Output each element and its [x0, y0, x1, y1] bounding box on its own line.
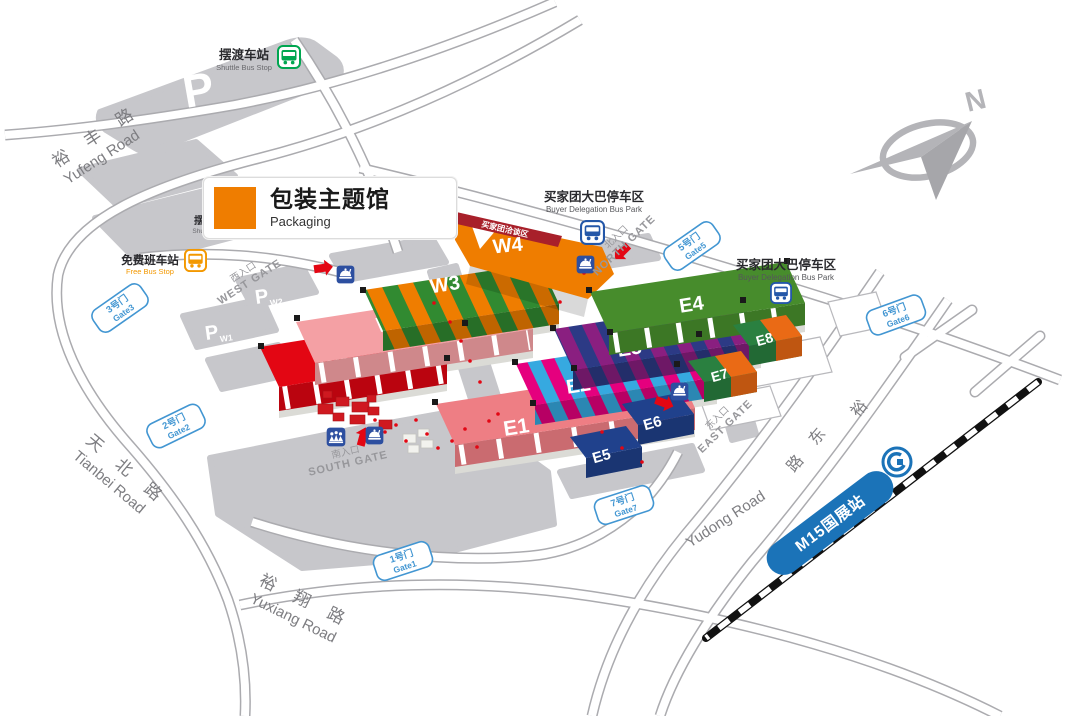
delegation-bus-icon-east — [771, 283, 791, 303]
compass-n-label: N — [962, 83, 989, 118]
free-bus-stop-label-zh: 免费班车站 — [121, 253, 179, 267]
map-canvas: W1 W2 W3 买家团洽谈区 W4 E1 E2 — [0, 0, 1080, 716]
free-bus-stop-label-en: Free Bus Stop — [126, 267, 174, 276]
delegation-bus-icon-north — [581, 221, 604, 244]
restaurant-icon — [366, 427, 384, 445]
bus-park-north-label-zh: 买家团大巴停车区 — [544, 189, 645, 204]
bus-park-north-label-en: Buyer Delegation Bus Park — [546, 205, 643, 214]
hall-w3-label: W3 — [429, 272, 462, 298]
legend-title: 包装主题馆 — [270, 187, 390, 212]
shuttle-bus-stop-label-zh: 摆渡车站 — [219, 47, 270, 62]
restaurant-icon — [671, 383, 689, 401]
compass-north-icon: N — [850, 83, 989, 200]
gate2-pill: 2号门Gate2 — [144, 402, 208, 451]
legend-swatch — [214, 187, 256, 229]
exhibition-map-page: W1 W2 W3 买家团洽谈区 W4 E1 E2 — [0, 0, 1080, 716]
metro-logo-icon — [883, 448, 911, 476]
free-bus-icon — [185, 250, 206, 271]
grandstand-icon — [327, 428, 346, 447]
yudong-road-char: 东 — [805, 425, 829, 449]
bus-park-east-label-zh: 买家团大巴停车区 — [736, 257, 837, 272]
hall-e4-label: E4 — [678, 292, 706, 318]
yudong-road-char: 路 — [783, 452, 807, 476]
metro-station: M15国展站 — [760, 448, 911, 582]
svg-text:W2: W2 — [269, 296, 283, 308]
gate3-pill: 3号门Gate3 — [89, 281, 151, 336]
restaurant-icon — [337, 266, 355, 284]
shuttle-bus-icon — [278, 46, 300, 68]
bus-park-east-label-en: Buyer Delegation Bus Park — [738, 273, 835, 282]
hall-e1-label: E1 — [502, 414, 531, 441]
shuttle-bus-stop-label-en: Shuttle Bus Stop — [216, 63, 272, 72]
svg-text:W1: W1 — [219, 332, 233, 344]
legend-subtitle: Packaging — [270, 214, 390, 229]
hall-w4-label: W4 — [492, 233, 525, 258]
legend-packaging: 包装主题馆 Packaging — [203, 177, 457, 239]
